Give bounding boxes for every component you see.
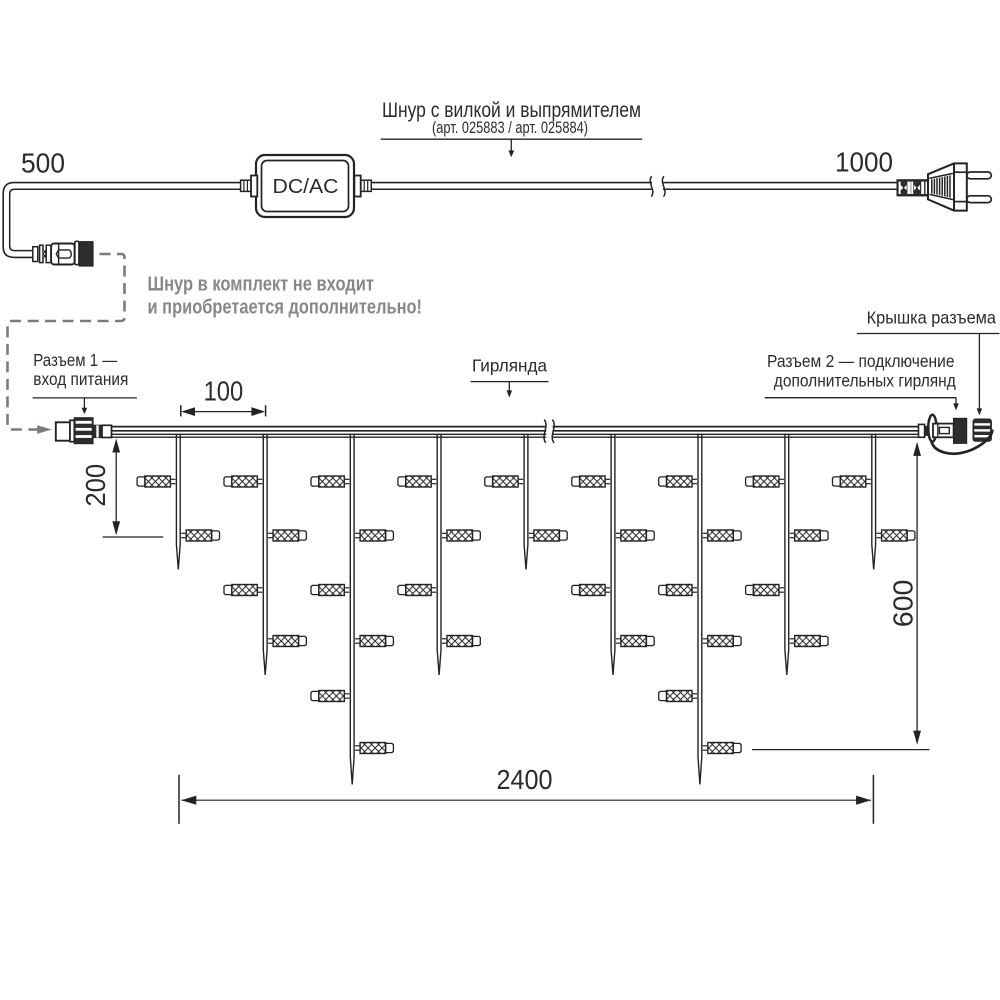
svg-text:500: 500 — [21, 148, 65, 179]
svg-text:Крышка разъема: Крышка разъема — [867, 307, 997, 327]
svg-text:100: 100 — [204, 376, 244, 407]
svg-text:2400: 2400 — [497, 764, 553, 795]
svg-text:и приобретается дополнительно!: и приобретается дополнительно! — [148, 296, 423, 319]
svg-text:(арт. 025883 / арт. 025884): (арт. 025883 / арт. 025884) — [432, 119, 588, 137]
svg-text:дополнительных гирлянд: дополнительных гирлянд — [774, 371, 956, 391]
svg-text:200: 200 — [80, 464, 111, 507]
svg-text:Разъем 2 — подключение: Разъем 2 — подключение — [767, 351, 955, 371]
svg-text:Гирлянда: Гирлянда — [472, 355, 547, 375]
svg-text:Разъем 1 —: Разъем 1 — — [33, 350, 118, 370]
svg-text:Шнур в комплект не входит: Шнур в комплект не входит — [148, 273, 375, 296]
svg-text:DC/AC: DC/AC — [273, 176, 339, 198]
svg-text:1000: 1000 — [835, 147, 893, 178]
svg-text:600: 600 — [888, 580, 919, 628]
svg-text:вход питания: вход питания — [33, 369, 128, 389]
